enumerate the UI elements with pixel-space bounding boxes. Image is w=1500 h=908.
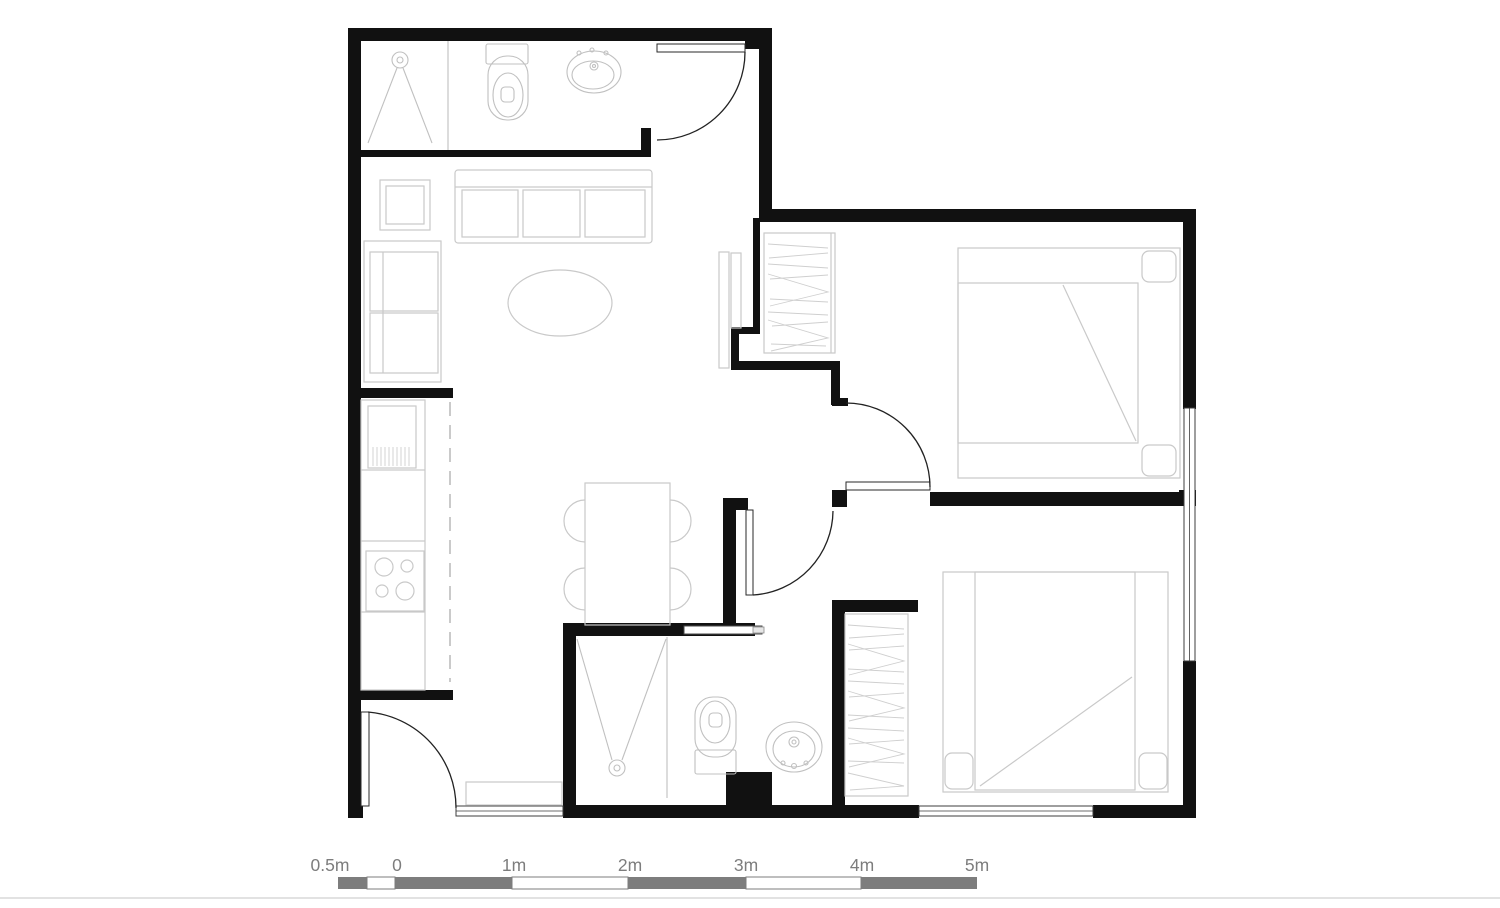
bathroom2-right-wall (832, 600, 845, 805)
bathroom2-left-wall (563, 630, 576, 805)
bedroom1-door-arc (846, 403, 930, 487)
bedrooms-divider-wall (930, 492, 1184, 506)
washbasin-icon (766, 722, 822, 772)
toilet-icon (486, 44, 528, 120)
kitchen-stub-wall-top (354, 388, 453, 398)
exterior-wall-top (348, 28, 772, 41)
double-bed-icon (958, 248, 1180, 478)
doormat-icon (466, 782, 562, 805)
pillow-icon (1142, 445, 1176, 476)
shower-icon (368, 52, 432, 143)
bathroom-main-hinge-block (745, 36, 765, 49)
scale-label-2m: 2m (618, 855, 642, 875)
pillow-icon (1142, 251, 1176, 282)
bathroom2-sliding-door (684, 626, 764, 634)
bathroom-main-door-arc (657, 52, 745, 140)
scale-segment (395, 877, 512, 889)
bathroom2-symbols (577, 637, 822, 798)
dining-table-icon (585, 483, 670, 625)
scale-segment (367, 877, 395, 889)
bathroom-main-door-jamb (641, 128, 651, 157)
chair-icon (564, 568, 585, 610)
exterior-wall-bottom-right (1093, 805, 1196, 818)
kitchen-counter (361, 400, 425, 690)
scale-segment (512, 877, 628, 889)
exterior-wall-right-lower (1183, 661, 1196, 818)
bathroom-main-bottom-wall (354, 150, 646, 157)
stove-icon (366, 551, 424, 611)
double-bed-icon (943, 572, 1168, 792)
entry-door-arc (368, 712, 456, 808)
bathroom2-plumbing-chase (726, 772, 772, 805)
kitchen-symbols (361, 400, 450, 690)
kitchen-sink-icon (368, 406, 416, 468)
bedroom1-symbols (764, 233, 1180, 478)
coffee-table-icon (508, 270, 612, 336)
living-bedroom1-thin-wall (753, 218, 760, 330)
bathroom-main-door-leaf (657, 44, 745, 52)
shower-icon (577, 639, 666, 776)
scale-segment (861, 877, 977, 889)
chair-icon (670, 568, 691, 610)
scale-bar: 0.5m 0 1m 2m 3m 4m 5m (311, 855, 990, 889)
exterior-wall-bedroom1-top (759, 209, 1190, 222)
floor-plan-page: 0.5m 0 1m 2m 3m 4m 5m (0, 0, 1500, 908)
bedroom1-door-leaf (846, 482, 930, 490)
closet-step-wall-h2 (731, 361, 838, 370)
floor-plan-drawing: 0.5m 0 1m 2m 3m 4m 5m (0, 0, 1500, 908)
wardrobe-icon (764, 233, 835, 353)
scale-segment (746, 877, 861, 889)
scale-label-4m: 4m (850, 855, 874, 875)
sofa-icon (455, 170, 652, 243)
scale-label-5m: 5m (965, 855, 989, 875)
scale-segment (338, 877, 367, 889)
chair-icon (564, 500, 585, 542)
bedroom-doors-center-cap (832, 490, 847, 507)
window-bottom-entry (456, 806, 563, 816)
shelf-unit-icon (364, 241, 441, 382)
window-right-bedrooms (1184, 408, 1195, 661)
pillow-icon (1139, 753, 1167, 789)
toilet-icon (695, 697, 736, 774)
chair-icon (670, 500, 691, 542)
scale-label-0-5m: 0.5m (311, 855, 350, 875)
hallway-wall (723, 498, 736, 632)
bedroom2-wardrobe-top-wall (832, 600, 918, 612)
living-room-symbols (364, 170, 741, 382)
scale-label-3m: 3m (734, 855, 758, 875)
washbasin-icon (567, 48, 621, 93)
scale-label-0: 0 (392, 855, 402, 875)
kitchen-stub-wall-bottom (354, 690, 453, 700)
bedroom1-door-hinge-foot (832, 398, 848, 406)
scale-label-1m: 1m (502, 855, 526, 875)
bathroom-main-symbols (368, 41, 621, 150)
side-table-icon (380, 180, 430, 230)
entry-door-leaf (361, 712, 369, 806)
exterior-wall-bottom-middle (563, 805, 919, 818)
hallway-wall-cap (723, 498, 748, 510)
window-bottom-bedroom2 (919, 806, 1093, 816)
scale-segment (628, 877, 746, 889)
dining-symbols (564, 483, 691, 625)
bedroom2-door-leaf (746, 510, 753, 595)
walls (348, 28, 1196, 818)
exterior-wall-right-upper-step (759, 28, 772, 218)
wardrobe-icon (845, 614, 908, 796)
bedroom2-door-arc (753, 511, 833, 595)
pillow-icon (945, 753, 973, 789)
exterior-wall-right-upper (1183, 209, 1196, 409)
